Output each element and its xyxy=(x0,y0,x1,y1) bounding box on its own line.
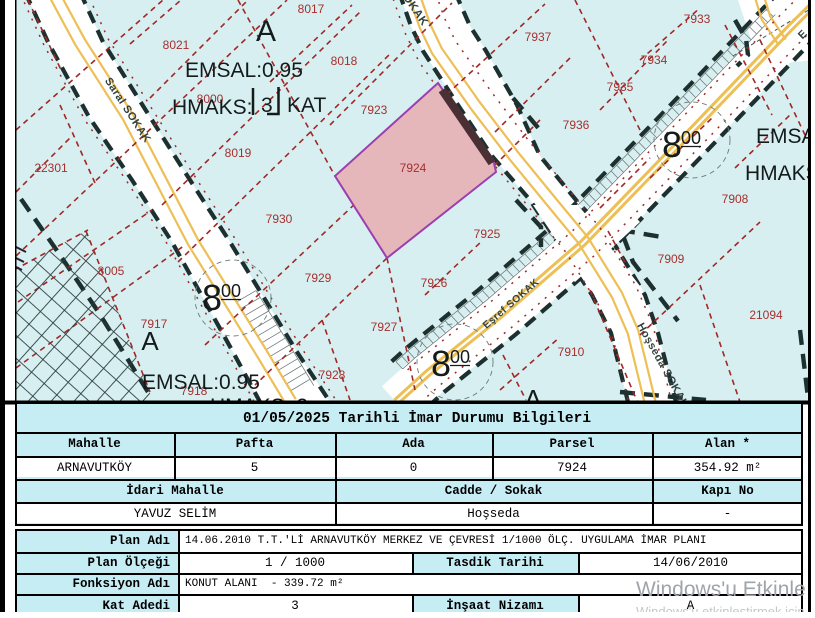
svg-text:7927: 7927 xyxy=(371,320,398,334)
svg-text:7908: 7908 xyxy=(722,192,749,206)
svg-text:7923: 7923 xyxy=(361,103,388,117)
svg-text:8021: 8021 xyxy=(163,38,190,52)
svg-text:A: A xyxy=(256,15,276,48)
svg-text:7937: 7937 xyxy=(525,30,552,44)
svg-text:8018: 8018 xyxy=(331,54,358,68)
svg-text:7934: 7934 xyxy=(641,53,668,67)
svg-text:A: A xyxy=(141,326,159,356)
svg-text:8017: 8017 xyxy=(298,2,325,16)
svg-text:7935: 7935 xyxy=(607,80,634,94)
svg-text:7929: 7929 xyxy=(305,271,332,285)
svg-text:8: 8 xyxy=(431,343,451,384)
svg-text:22301: 22301 xyxy=(34,161,68,175)
svg-text:00: 00 xyxy=(681,128,701,148)
svg-text:7926: 7926 xyxy=(421,276,448,290)
svg-text:7909: 7909 xyxy=(658,252,685,266)
svg-text:8: 8 xyxy=(202,277,222,318)
svg-text:00: 00 xyxy=(450,347,470,367)
svg-text:KAT: KAT xyxy=(287,94,326,117)
svg-text:8019: 8019 xyxy=(225,146,252,160)
svg-text:8005: 8005 xyxy=(98,264,125,278)
svg-text:7910: 7910 xyxy=(558,345,585,359)
svg-text:7925: 7925 xyxy=(474,227,501,241)
svg-text:7928: 7928 xyxy=(319,368,346,382)
svg-text:7930: 7930 xyxy=(266,212,293,226)
svg-text:7924: 7924 xyxy=(400,161,427,175)
svg-text:HMAKS:: HMAKS: xyxy=(172,96,253,119)
svg-text:EMSAL:0.9: EMSAL:0.9 xyxy=(756,125,815,148)
svg-text:8: 8 xyxy=(662,124,682,165)
svg-text:00: 00 xyxy=(221,281,241,301)
svg-text:7936: 7936 xyxy=(563,118,590,132)
svg-text:EMSAL:0.95: EMSAL:0.95 xyxy=(142,371,260,394)
svg-text:HMAKS:: HMAKS: xyxy=(745,162,815,185)
svg-text:21094: 21094 xyxy=(749,308,783,322)
svg-text:EMSAL:0.95: EMSAL:0.95 xyxy=(185,59,303,82)
svg-text:7933: 7933 xyxy=(684,12,711,26)
